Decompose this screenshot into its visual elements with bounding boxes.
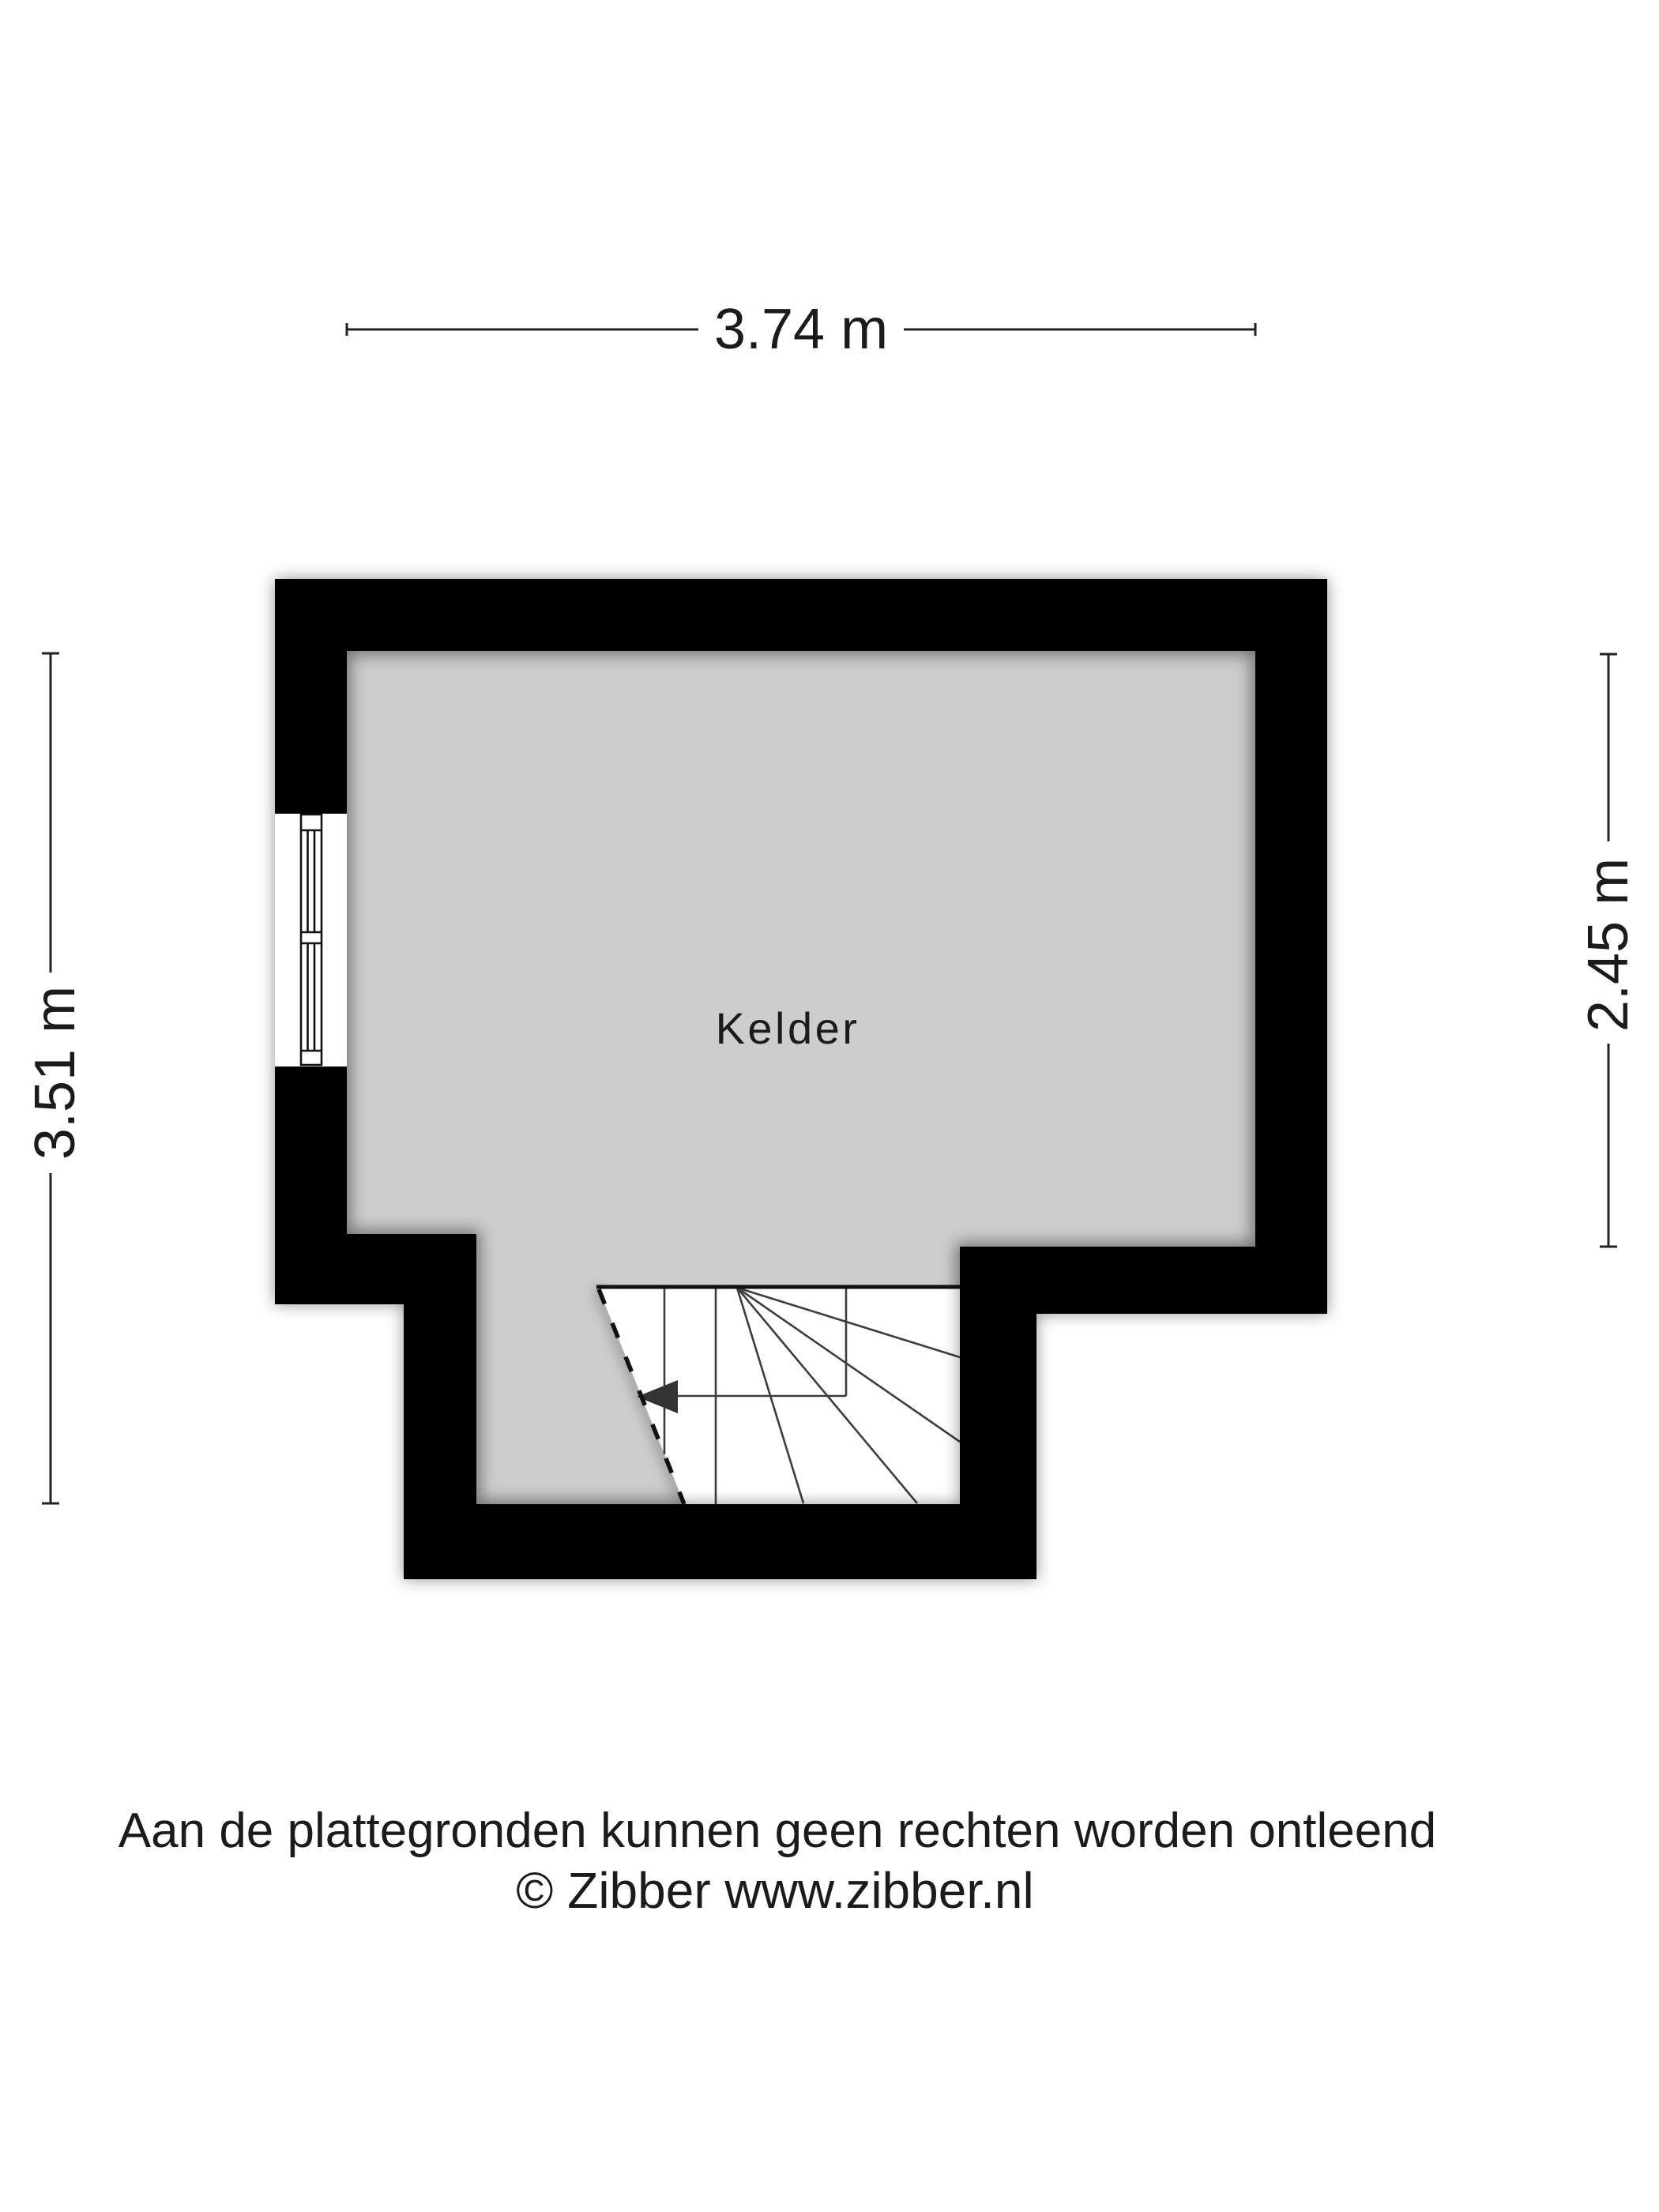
svg-text:Aan de plattegronden kunnen ge: Aan de plattegronden kunnen geen rechten… — [118, 1804, 1436, 1858]
svg-text:Kelder: Kelder — [716, 1003, 860, 1053]
svg-text:© Zibber www.zibber.nl: © Zibber www.zibber.nl — [516, 1862, 1033, 1919]
svg-text:3.74 m: 3.74 m — [714, 298, 888, 361]
svg-text:2.45 m: 2.45 m — [1577, 858, 1640, 1032]
svg-text:3.51 m: 3.51 m — [24, 986, 87, 1160]
